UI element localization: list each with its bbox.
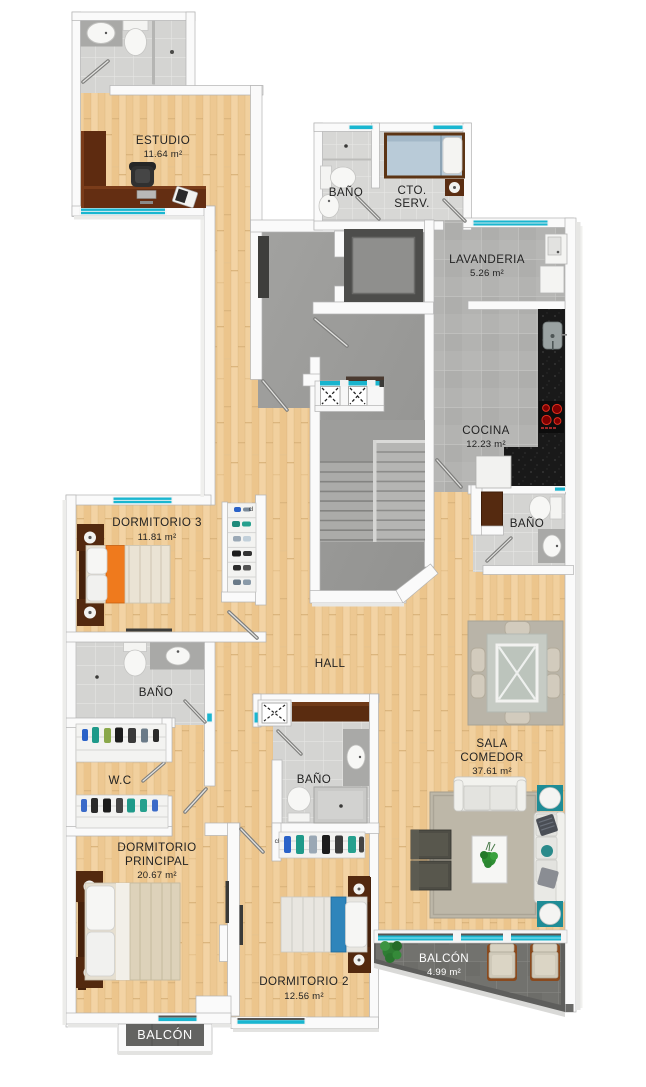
svg-text:cl: cl [275,838,280,845]
svg-text:37.61 m²: 37.61 m² [472,766,512,777]
svg-text:SALA: SALA [476,737,507,750]
svg-text:BAÑO: BAÑO [510,517,544,530]
svg-text:4.99 m²: 4.99 m² [427,967,462,978]
svg-text:ESTUDIO: ESTUDIO [136,134,190,147]
svg-text:12.56 m²: 12.56 m² [284,991,324,1002]
svg-text:W.C: W.C [108,774,131,787]
svg-text:BALCÓN: BALCÓN [137,1027,192,1042]
svg-text:CTO.: CTO. [397,184,426,197]
svg-text:COCINA: COCINA [462,424,510,437]
svg-text:cl: cl [249,506,254,513]
svg-text:BAÑO: BAÑO [297,773,331,786]
svg-text:20.67 m²: 20.67 m² [137,870,177,881]
svg-text:SERV.: SERV. [394,197,430,210]
svg-text:LAVANDERIA: LAVANDERIA [449,253,525,266]
svg-text:5.26 m²: 5.26 m² [470,268,505,279]
svg-text:BAÑO: BAÑO [139,686,173,699]
svg-text:DORMITORIO 3: DORMITORIO 3 [112,516,202,529]
svg-text:BALCÓN: BALCÓN [419,952,469,965]
svg-text:11.64 m²: 11.64 m² [144,149,183,160]
svg-text:DORMITORIO: DORMITORIO [117,841,196,854]
svg-text:12.23 m²: 12.23 m² [466,439,506,450]
svg-text:PRINCIPAL: PRINCIPAL [125,855,189,868]
svg-text:HALL: HALL [315,657,346,670]
svg-text:COMEDOR: COMEDOR [460,751,523,764]
svg-text:DORMITORIO 2: DORMITORIO 2 [259,975,349,988]
svg-text:11.81 m²: 11.81 m² [138,532,177,543]
svg-text:BAÑO: BAÑO [329,186,363,199]
